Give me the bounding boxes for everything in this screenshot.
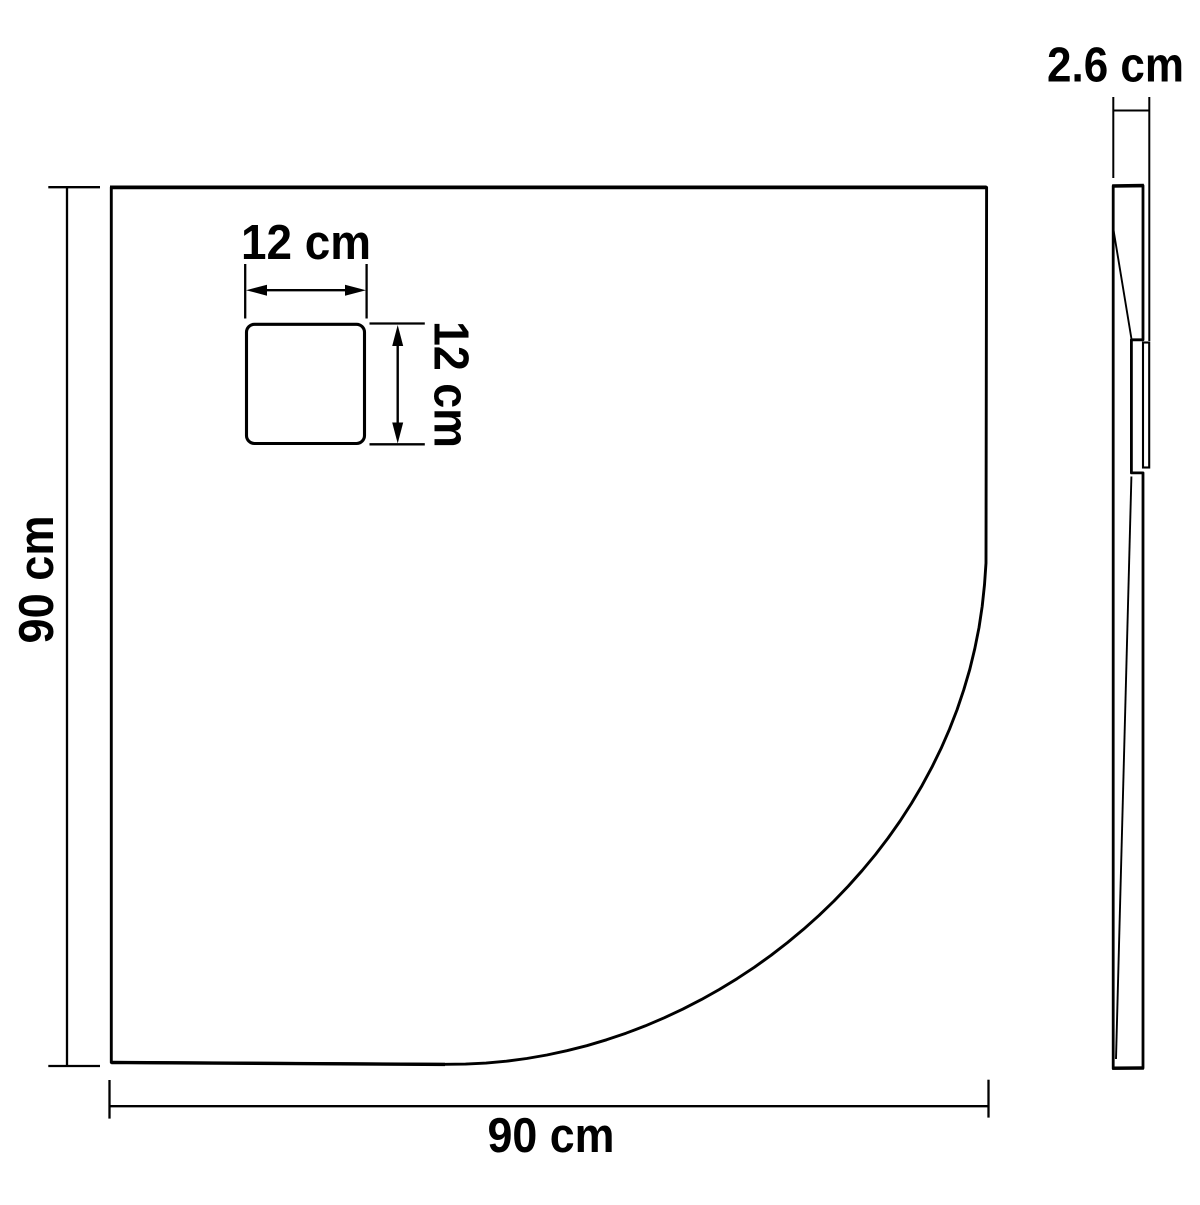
svg-text:2.6 cm: 2.6 cm bbox=[1047, 39, 1184, 93]
svg-text:90 cm: 90 cm bbox=[488, 1109, 615, 1163]
svg-text:12 cm: 12 cm bbox=[423, 321, 477, 448]
svg-text:12 cm: 12 cm bbox=[241, 216, 371, 270]
svg-text:90 cm: 90 cm bbox=[10, 516, 64, 644]
